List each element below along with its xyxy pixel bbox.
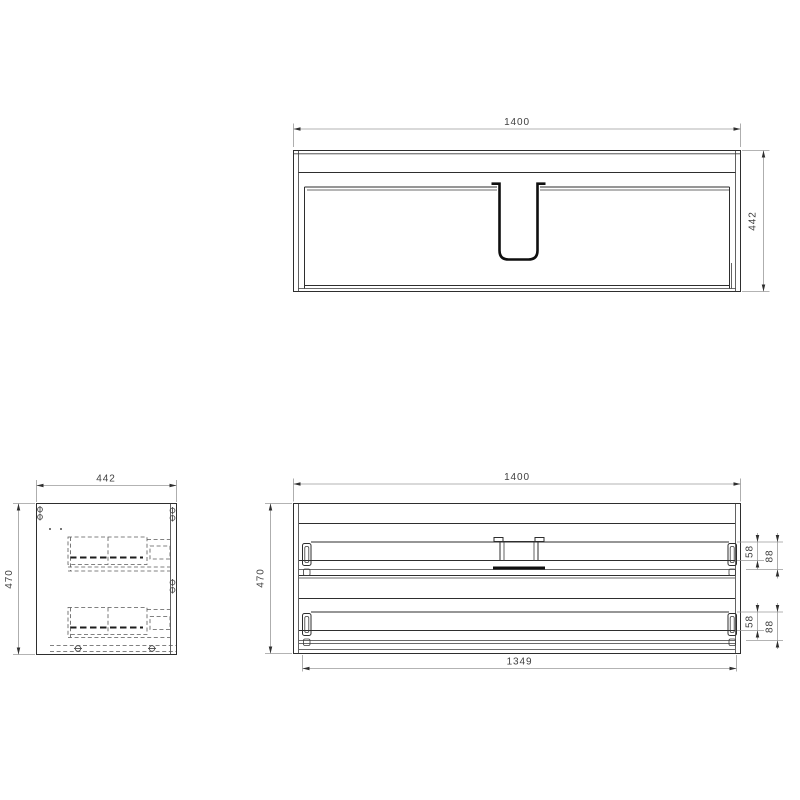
drawing-sheet: 1400 442 <box>0 0 800 800</box>
side-view-outline <box>37 504 177 655</box>
dim-label-top-drawer-slide: 58 <box>745 545 756 558</box>
dim-label-front-height: 470 <box>256 568 267 587</box>
siphon-cutout <box>492 184 546 260</box>
side-view-hidden-drawer-top <box>68 537 171 571</box>
side-view: 442 470 <box>4 474 177 655</box>
front-view-dim-height: 470 <box>256 504 293 654</box>
front-view-carcass <box>294 504 741 654</box>
dim-label-front-width: 1400 <box>504 472 530 483</box>
cad-drawing: 1400 442 <box>0 0 800 800</box>
front-view-dims-top-drawer: 58 88 <box>737 533 783 579</box>
side-view-dim-height: 470 <box>4 504 35 655</box>
side-view-fittings <box>38 506 175 594</box>
side-view-carcass <box>37 504 177 655</box>
side-view-hidden-bottom-rail <box>50 646 176 652</box>
front-view: 1400 470 1349 58 88 <box>256 472 784 672</box>
top-view-carcass <box>294 151 741 292</box>
front-view-dim-inner-width: 1349 <box>303 655 737 672</box>
dim-label-top-width: 1400 <box>504 117 530 128</box>
top-view-dim-width: 1400 <box>294 117 741 147</box>
dim-label-top-depth: 442 <box>748 211 759 230</box>
top-view-dim-depth: 442 <box>742 151 770 292</box>
dim-label-bottom-drawer-back: 88 <box>765 620 776 633</box>
dim-label-front-inner-width: 1349 <box>507 657 533 668</box>
top-view-outline <box>294 151 741 292</box>
front-view-dim-width: 1400 <box>294 472 741 502</box>
front-view-dims-bottom-drawer: 58 88 <box>737 603 783 649</box>
dim-label-side-width: 442 <box>96 474 115 485</box>
top-view: 1400 442 <box>294 117 770 292</box>
dim-label-bottom-drawer-slide: 58 <box>745 615 756 628</box>
side-view-dim-width: 442 <box>37 474 177 503</box>
dim-label-side-height: 470 <box>4 569 15 588</box>
side-view-hidden-drawer-bottom <box>68 608 171 638</box>
dim-label-top-drawer-back: 88 <box>765 550 776 563</box>
